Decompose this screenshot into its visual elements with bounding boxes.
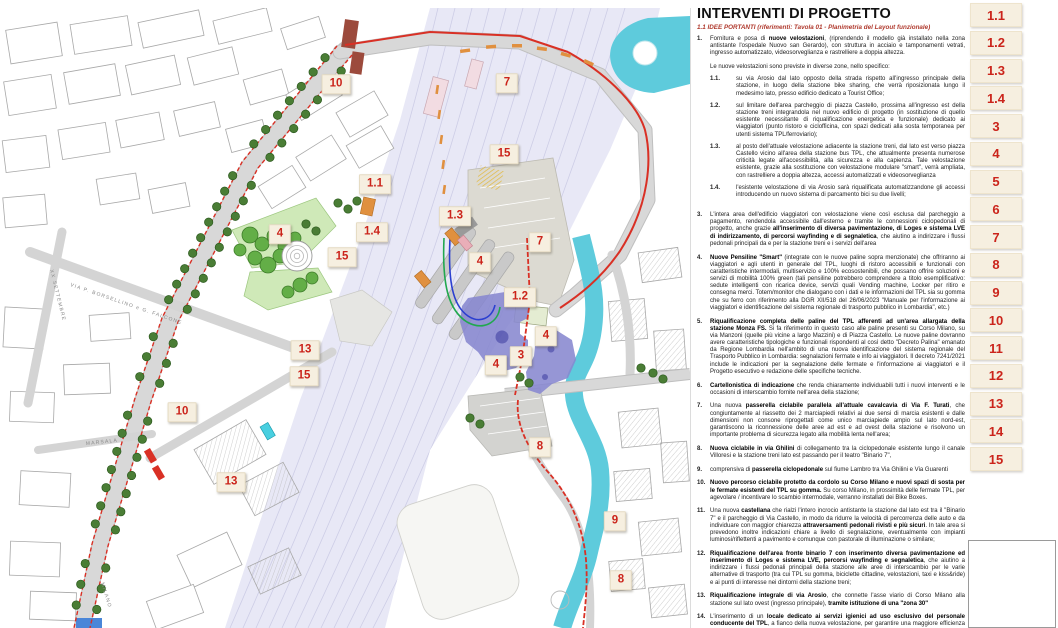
map-marker-badge: 4: [469, 252, 491, 272]
intervention-subitem: 1.3.al posto dell'attuale velostazione a…: [710, 144, 965, 180]
subitem-number: 1.2.: [710, 103, 736, 139]
index-badge-11: 11: [970, 336, 1022, 360]
pool-structure: [76, 618, 102, 628]
intervention-item: 12.Riqualificazione dell'area fronte bin…: [697, 551, 965, 587]
item-text: comprensiva di passerella ciclopedonale …: [710, 467, 965, 474]
map-marker-badge: 1.1: [359, 174, 391, 194]
subitem-text: al posto dell'attuale velostazione adiac…: [736, 144, 965, 180]
item-number: 4.: [697, 255, 710, 313]
intervention-item: 13.Riqualificazione integrale di via Aro…: [697, 593, 965, 607]
item-number: 10.: [697, 480, 710, 502]
item-number: 3.: [697, 212, 710, 248]
index-badge-10: 10: [970, 308, 1022, 332]
intervention-item: 4.Nuove Pensiline "Smart" (integrate con…: [697, 255, 965, 313]
index-badge-9: 9: [970, 281, 1022, 305]
interventions-panel: INTERVENTI DI PROGETTO 1.1 IDEE PORTANTI…: [697, 6, 965, 628]
map-marker-badge: 9: [604, 511, 626, 531]
map-marker-badge: 3: [510, 346, 532, 366]
item-text: Una nuova castellana che rialzi l'intero…: [710, 508, 965, 544]
index-badge-12: 12: [970, 364, 1022, 388]
intervention-subitem: 1.1.su via Arosio dal lato opposto della…: [710, 76, 965, 98]
item-number: 8.: [697, 446, 710, 460]
item-number: 13.: [697, 593, 710, 607]
bikesharing-marker: [260, 422, 275, 439]
intervention-item: 6.Cartellonistica di indicazione che ren…: [697, 383, 965, 397]
intervention-subitem: 1.2.sul limitare dell'area parcheggio di…: [710, 103, 965, 139]
item-number: 11.: [697, 508, 710, 544]
intervention-item: 14.L'inserimento di un locale dedicato a…: [697, 614, 965, 628]
map-marker-badge: 13: [291, 340, 320, 360]
map-panel-divider: [690, 8, 691, 628]
item-number: 12.: [697, 551, 710, 587]
intervention-item: 7.Una nuova passerella ciclabile paralle…: [697, 403, 965, 439]
intervention-item: 5.Riqualificazione completa delle paline…: [697, 319, 965, 377]
subitem-text: su via Arosio dal lato opposto della str…: [736, 76, 965, 98]
index-badge-13: 13: [970, 392, 1022, 416]
panel-subtitle: 1.1 IDEE PORTANTI (riferimenti: Tavola 0…: [697, 24, 965, 31]
subitem-number: 1.3.: [710, 144, 736, 180]
empty-legend-box: [968, 540, 1056, 628]
intervention-subitem: 1.4.l'esistente velostazione di via Aros…: [710, 185, 965, 199]
index-badge-6: 6: [970, 197, 1022, 221]
map-marker-badge: 15: [290, 366, 319, 386]
map-marker-badge: 15: [490, 144, 519, 164]
index-badge-5: 5: [970, 170, 1022, 194]
intervention-item: 9.comprensiva di passerella ciclopedonal…: [697, 467, 965, 474]
map-marker-badge: 7: [529, 232, 551, 252]
map-marker-badge: 15: [328, 247, 357, 267]
index-badge-1.3: 1.3: [970, 59, 1022, 83]
item-text: Cartellonistica di indicazione che renda…: [710, 383, 965, 397]
index-badge-1.1: 1.1: [970, 3, 1022, 27]
item-text: Riqualificazione dell'area fronte binari…: [710, 551, 965, 587]
page-title: INTERVENTI DI PROGETTO: [697, 6, 965, 22]
map-marker-badge: 4: [485, 355, 507, 375]
item-text: L'intera area dell'edificio viaggiatori …: [710, 212, 965, 248]
intervention-item: 8.Nuova ciclabile in via Ghilini di coll…: [697, 446, 965, 460]
subitem-text: l'esistente velostazione di via Arosio s…: [736, 185, 965, 199]
map-marker-badge: 4: [535, 326, 557, 346]
item-text: Fornitura e posa di nuove velostazioni, …: [710, 36, 965, 58]
subitem-number: 1.1.: [710, 76, 736, 98]
map-drawing: VIA P. BORSELLINO e G. FALCONEXX SETTEMB…: [0, 8, 690, 628]
subitem-number: 1.4.: [710, 185, 736, 199]
index-badge-1.4: 1.4: [970, 86, 1022, 110]
index-badge-3: 3: [970, 114, 1022, 138]
map-marker-badge: 10: [322, 74, 351, 94]
item-number: 5.: [697, 319, 710, 377]
item-number: 9.: [697, 467, 710, 474]
intervention-item: 3.L'intera area dell'edificio viaggiator…: [697, 212, 965, 248]
index-badge-14: 14: [970, 419, 1022, 443]
street-label: MILANO: [99, 582, 112, 609]
map-marker-badge: 13: [217, 472, 246, 492]
map-marker-badge: 8: [610, 570, 632, 590]
plan-sheet: { "panel": { "title": "INTERVENTI DI PRO…: [0, 0, 1058, 628]
map-marker-badge: 4: [269, 224, 291, 244]
item-number: 1.: [697, 36, 710, 58]
map-marker-badge: 7: [496, 73, 518, 93]
map-marker-badge: 1.3: [439, 206, 471, 226]
index-badge-15: 15: [970, 447, 1022, 471]
index-badge-7: 7: [970, 225, 1022, 249]
item-number: 7.: [697, 403, 710, 439]
item-text: L'inserimento di un locale dedicato ai s…: [710, 614, 965, 628]
index-badge-8: 8: [970, 253, 1022, 277]
item-number: 6.: [697, 383, 710, 397]
masterplan-map: VIA P. BORSELLINO e G. FALCONEXX SETTEMB…: [0, 8, 690, 628]
sublist-intro: Le nuove velostazioni sono previste in d…: [710, 64, 965, 71]
map-marker-badge: 1.2: [504, 287, 536, 307]
interventions-list: 1.Fornitura e posa di nuove velostazioni…: [697, 36, 965, 628]
item-text: Riqualificazione integrale di via Arosio…: [710, 593, 965, 607]
item-text: Riqualificazione completa delle paline d…: [710, 319, 965, 377]
item-text: Nuova ciclabile in via Ghilini di colleg…: [710, 446, 965, 460]
item-text: Una nuova passerella ciclabile parallela…: [710, 403, 965, 439]
map-marker-badge: 8: [529, 437, 551, 457]
item-text: Nuovo percorso ciclabile protetto da cor…: [710, 480, 965, 502]
map-marker-badge: 10: [168, 402, 197, 422]
intervention-item: 10.Nuovo percorso ciclabile protetto da …: [697, 480, 965, 502]
index-badge-4: 4: [970, 142, 1022, 166]
subitem-text: sul limitare dell'area parcheggio di pia…: [736, 103, 965, 139]
intervention-item: 1.Fornitura e posa di nuove velostazioni…: [697, 36, 965, 58]
item-text: Nuove Pensiline "Smart" (integrate con l…: [710, 255, 965, 313]
item-number: 14.: [697, 614, 710, 628]
index-badge-1.2: 1.2: [970, 31, 1022, 55]
map-marker-badge: 1.4: [356, 222, 388, 242]
intervention-item: 11.Una nuova castellana che rialzi l'int…: [697, 508, 965, 544]
